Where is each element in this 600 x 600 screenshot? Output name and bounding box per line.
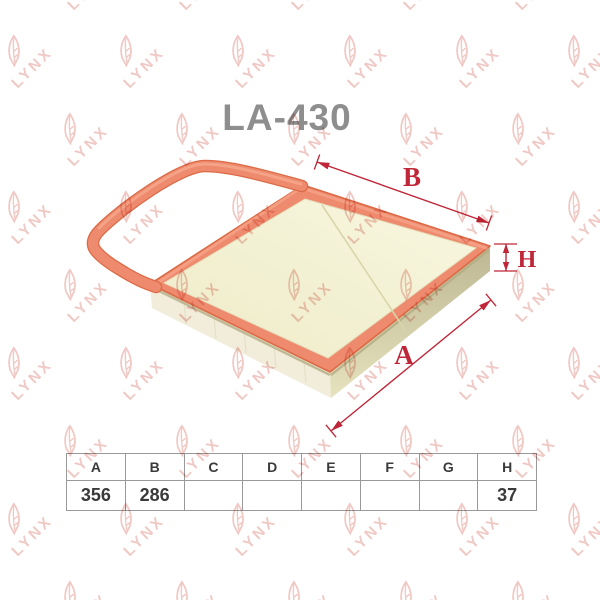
dimensions-table-header-row: A B C D E F G H (67, 454, 537, 481)
filter-body (150, 185, 490, 398)
value-f (360, 481, 419, 511)
col-header-h: H (478, 454, 537, 481)
value-g (419, 481, 478, 511)
col-header-d: D (243, 454, 302, 481)
dimension-h: H (494, 244, 537, 273)
dimensions-table: A B C D E F G H 356 286 37 (66, 453, 537, 511)
dimension-h-label: H (518, 247, 537, 273)
value-b: 286 (125, 481, 184, 511)
col-header-f: F (360, 454, 419, 481)
value-e (302, 481, 361, 511)
product-card: LA-430 (0, 0, 600, 600)
value-c (184, 481, 243, 511)
col-header-b: B (125, 454, 184, 481)
dimensions-table-value-row: 356 286 37 (67, 481, 537, 511)
dimension-a-label: A (394, 340, 414, 370)
col-header-e: E (302, 454, 361, 481)
dimension-b-label: B (403, 162, 421, 192)
col-header-c: C (184, 454, 243, 481)
col-header-g: G (419, 454, 478, 481)
value-a: 356 (67, 481, 126, 511)
col-header-a: A (67, 454, 126, 481)
value-h: 37 (478, 481, 537, 511)
value-d (243, 481, 302, 511)
